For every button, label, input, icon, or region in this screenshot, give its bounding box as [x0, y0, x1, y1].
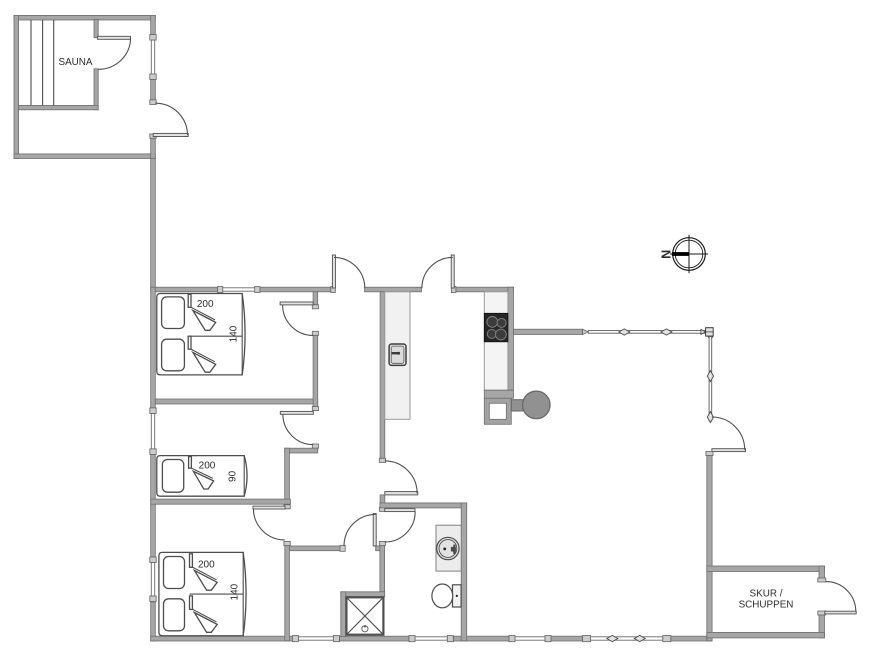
svg-text:200: 200 [198, 559, 215, 570]
svg-text:SCHUPPEN: SCHUPPEN [739, 599, 794, 610]
svg-text:200: 200 [197, 299, 214, 310]
svg-text:SKUR /: SKUR / [750, 588, 783, 599]
svg-text:140: 140 [229, 583, 240, 600]
svg-text:N: N [659, 250, 673, 259]
svg-text:140: 140 [229, 325, 240, 342]
svg-text:90: 90 [227, 470, 238, 482]
svg-text:200: 200 [199, 460, 216, 471]
svg-text:SAUNA: SAUNA [58, 57, 92, 68]
